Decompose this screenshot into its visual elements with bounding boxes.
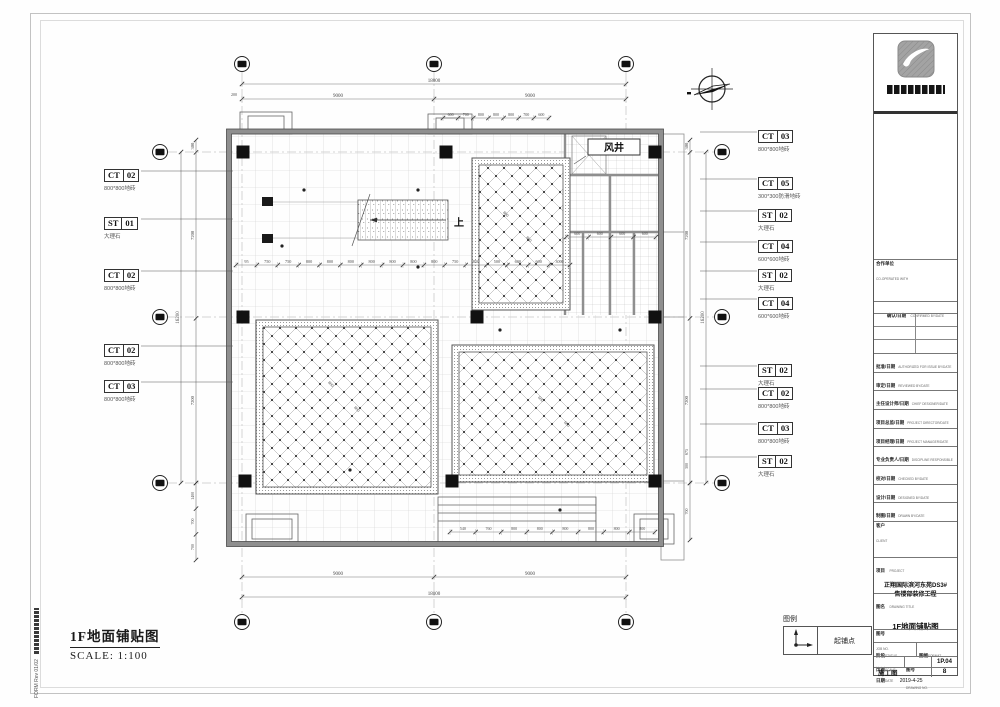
finish-code: CT02 [758, 387, 793, 400]
dim-label: 300 [684, 142, 689, 150]
logo-icon [897, 40, 935, 78]
dim-label: 300 [684, 463, 689, 469]
dim-label: 95 [244, 259, 248, 264]
air-shaft-text: 风井 [604, 141, 624, 154]
finish-label: ST02大理石 [758, 205, 828, 232]
dim-label: 600 [642, 231, 648, 236]
finish-code: CT05 [758, 177, 793, 190]
legend: 图例 起铺点 [783, 614, 872, 655]
dim-label: 750 [285, 259, 291, 264]
dim-label: 1400 [190, 492, 195, 500]
grid-bubble [153, 145, 168, 160]
finish-code: ST02 [758, 364, 792, 377]
personnel-row: 校对/日期CHECKED BY/DATE [874, 465, 957, 484]
dim-label: 800 [369, 259, 375, 264]
margin-note: FORM Rev 01/02 [34, 548, 40, 698]
sheet-number: 8 [931, 668, 957, 677]
sheet-scale: SCALE: 1:100 [70, 650, 160, 662]
column [649, 475, 662, 488]
finish-desc: 大理石 [758, 470, 828, 478]
date-value: 2019-4-25 [900, 678, 923, 684]
dim-label: 800 [389, 259, 395, 264]
right-wing [661, 134, 684, 560]
title-block-divider [874, 111, 957, 114]
finish-desc: 大理石 [104, 232, 174, 240]
finish-label: CT03800*800地砖 [104, 376, 174, 403]
finish-label: ST02大理石 [758, 265, 828, 292]
finish-label: CT04600*600地砖 [758, 293, 828, 320]
dim-label: 800 [410, 259, 416, 264]
grid-bubble [619, 57, 634, 72]
sheet-title-block: 1F地面铺贴图 SCALE: 1:100 [70, 625, 160, 662]
finish-label: CT04600*600地砖 [758, 236, 828, 263]
grid-bubble [715, 145, 730, 160]
dim-label: 800 [562, 526, 568, 531]
dim-label: 500 [494, 259, 500, 264]
finish-code: CT02 [104, 169, 139, 182]
stair-up-text: 上 [454, 216, 464, 229]
personnel-row: 主任设计师/日期CHIEF DESIGNER/DATE [874, 390, 957, 409]
personnel-row: 专业负责人/日期DISCIPLINE RESPONSIBLE BY [874, 446, 957, 465]
dim-label: 800 [478, 112, 484, 117]
finish-label: CT02800*800地砖 [104, 340, 174, 367]
finish-code: CT02 [104, 344, 139, 357]
dim-label: 300 [190, 142, 195, 150]
dim-label: 800 [511, 526, 517, 531]
drawing-sheet: 风井 上 18000900090002009000900018000162003… [0, 0, 1000, 707]
dim-label: 16200 [701, 311, 706, 324]
finish-desc: 800*800地砖 [104, 395, 174, 403]
grid-bubble [427, 57, 442, 72]
grid-bubble [427, 615, 442, 630]
dim-label: 9000 [525, 572, 536, 577]
finish-code: CT03 [758, 130, 793, 143]
dim-label: 700 [190, 544, 195, 550]
north-arrow-icon [687, 68, 733, 110]
finish-desc: 600*600地砖 [758, 255, 828, 263]
dim-label: 16200 [176, 311, 181, 324]
sheet-title: 1F地面铺贴图 [70, 625, 160, 648]
dim-label: 760 [485, 526, 491, 531]
finish-label: CT05300*300防滑地砖 [758, 173, 828, 200]
title-block: 合作单位 CO-OPERATED WITH 确认/日期 CONFIRMED BY… [873, 33, 958, 676]
coop-label-cn: 合作单位 [876, 261, 955, 267]
finish-desc: 800*800地砖 [758, 145, 828, 153]
column [237, 311, 250, 324]
finish-code: ST02 [758, 455, 792, 468]
dim-label: 700 [190, 519, 195, 525]
scale-row: 比例SCALE 图号DRAWING NO. 1P.04 [874, 656, 957, 667]
dim-label: 18000 [428, 592, 441, 597]
finish-desc: 800*800地砖 [104, 359, 174, 367]
personnel-row: 批准/日期AUTHORIZED FOR ISSUE BY/DATE [874, 353, 957, 372]
personnel-row: 制图/日期DRAWN BY/DATE [874, 502, 957, 521]
finish-desc: 800*800地砖 [758, 437, 828, 445]
dim-label: 200 [231, 92, 237, 97]
finish-code: CT03 [104, 380, 139, 393]
finish-desc: 600*600地砖 [758, 312, 828, 320]
dim-label: 7200 [190, 395, 195, 405]
coop-section: 合作单位 CO-OPERATED WITH [874, 259, 957, 301]
dim-label: 700 [463, 112, 469, 117]
dim-label: 850 [473, 259, 479, 264]
finish-code: ST01 [104, 217, 138, 230]
status-row: 阶段STATUS 施工图 图幅FORMAT [874, 642, 957, 656]
finish-code: CT03 [758, 422, 793, 435]
company-logo [874, 34, 957, 111]
finish-desc: 300*300防滑地砖 [758, 192, 828, 200]
legend-item-label: 起铺点 [818, 627, 872, 655]
dim-label: 3000 [555, 259, 563, 264]
dim-label: 600 [448, 112, 454, 117]
confirm-row: 确认/日期 CONFIRMED BY/DATE [874, 301, 957, 313]
grid-bubble [153, 476, 168, 491]
dim-label: 800 [639, 526, 645, 531]
logo-text [887, 85, 945, 94]
service-block [565, 134, 658, 315]
dim-label: 800 [588, 526, 594, 531]
grid-bubble [715, 476, 730, 491]
job-no-section: 图号 JOB NO. [874, 629, 957, 642]
dim-label: 750 [452, 259, 458, 264]
dim-label: 800 [537, 526, 543, 531]
dim-label: 800 [614, 526, 620, 531]
legend-heading: 图例 [783, 614, 872, 624]
column [649, 146, 662, 159]
dim-label: 800 [327, 259, 333, 264]
dim-label: 800 [348, 259, 354, 264]
personnel-row: 设计/日期DESIGNED BY/DATE [874, 484, 957, 503]
margin-note-text: FORM Rev 01/02 [34, 659, 40, 698]
dim-label: 7200 [684, 395, 689, 405]
dim-label: 800 [306, 259, 312, 264]
drawing-no-value: 1P.04 [931, 657, 957, 667]
personnel-rows: 批准/日期AUTHORIZED FOR ISSUE BY/DATE审定/日期RE… [874, 353, 957, 521]
dim-label: 600 [619, 231, 625, 236]
finish-desc: 800*800地砖 [104, 284, 174, 292]
column [237, 146, 250, 159]
dim-label: 7200 [190, 230, 195, 240]
finish-label: CT02800*800地砖 [104, 265, 174, 292]
column [440, 146, 453, 159]
signature-grid [874, 313, 957, 353]
dim-label: 540 [460, 526, 466, 531]
client-section: 客户 CLIENT [874, 521, 957, 557]
dim-label: 700 [523, 112, 529, 117]
grid-bubble [235, 57, 250, 72]
grid-bubble [235, 615, 250, 630]
dim-label: 18000 [428, 79, 441, 84]
building-outline: 风井 上 [227, 112, 685, 560]
dim-label: 7200 [684, 230, 689, 240]
dim-label: 600 [538, 112, 544, 117]
column [471, 311, 484, 324]
dim-label: 800 [493, 112, 499, 117]
project-section: 项目 PROJECT 正翔国际滨河东苑DS3# 售楼部装修工程 [874, 557, 957, 593]
dim-label: 675 [684, 449, 689, 455]
personnel-row: 审定/日期REVIEWED BY/DATE [874, 372, 957, 391]
dim-label: 600 [574, 231, 580, 236]
drawing-title-section: 图名 DRAWING TITLE 1F地面铺贴图 [874, 593, 957, 629]
finish-label: ST02大理石 [758, 451, 828, 478]
grid-bubble [619, 615, 634, 630]
finish-label: CT03800*800地砖 [758, 418, 828, 445]
finish-label: CT02800*800地砖 [104, 165, 174, 192]
finish-code: ST02 [758, 209, 792, 222]
dim-label: 800 [508, 112, 514, 117]
finish-code: CT02 [104, 269, 139, 282]
finish-label: CT03800*800地砖 [758, 126, 828, 153]
finish-label: ST01大理石 [104, 213, 174, 240]
personnel-row: 项目总监/日期PROJECT DIRECTOR/DATE [874, 409, 957, 428]
date-row: 日期DATE 2019-4-25 8 [874, 667, 957, 677]
finish-code: ST02 [758, 269, 792, 282]
dim-label: 750 [264, 259, 270, 264]
dim-label: 700 [684, 509, 689, 515]
dim-label: 9000 [333, 94, 344, 99]
finish-code: CT04 [758, 240, 793, 253]
grid-bubble [153, 310, 168, 325]
coop-label-en: CO-OPERATED WITH [876, 277, 908, 281]
finish-desc: 大理石 [758, 224, 828, 232]
column [239, 475, 252, 488]
dim-label: 600 [515, 259, 521, 264]
grid-bubble [715, 310, 730, 325]
finish-desc: 800*800地砖 [104, 184, 174, 192]
finish-label: CT02800*800地砖 [758, 383, 828, 410]
dim-label: 9000 [525, 94, 536, 99]
column [446, 475, 459, 488]
finish-code: CT04 [758, 297, 793, 310]
personnel-row: 项目经理/日期PROJECT MANAGER/DATE [874, 428, 957, 447]
finish-desc: 大理石 [758, 284, 828, 292]
dim-label: 600 [536, 259, 542, 264]
dim-label: 9000 [333, 572, 344, 577]
column [649, 311, 662, 324]
finish-desc: 800*800地砖 [758, 402, 828, 410]
margin-note-cjk-bar [34, 608, 39, 654]
tile-start-point-icon [784, 627, 818, 655]
dim-label: 600 [597, 231, 603, 236]
dim-label: 800 [431, 259, 437, 264]
